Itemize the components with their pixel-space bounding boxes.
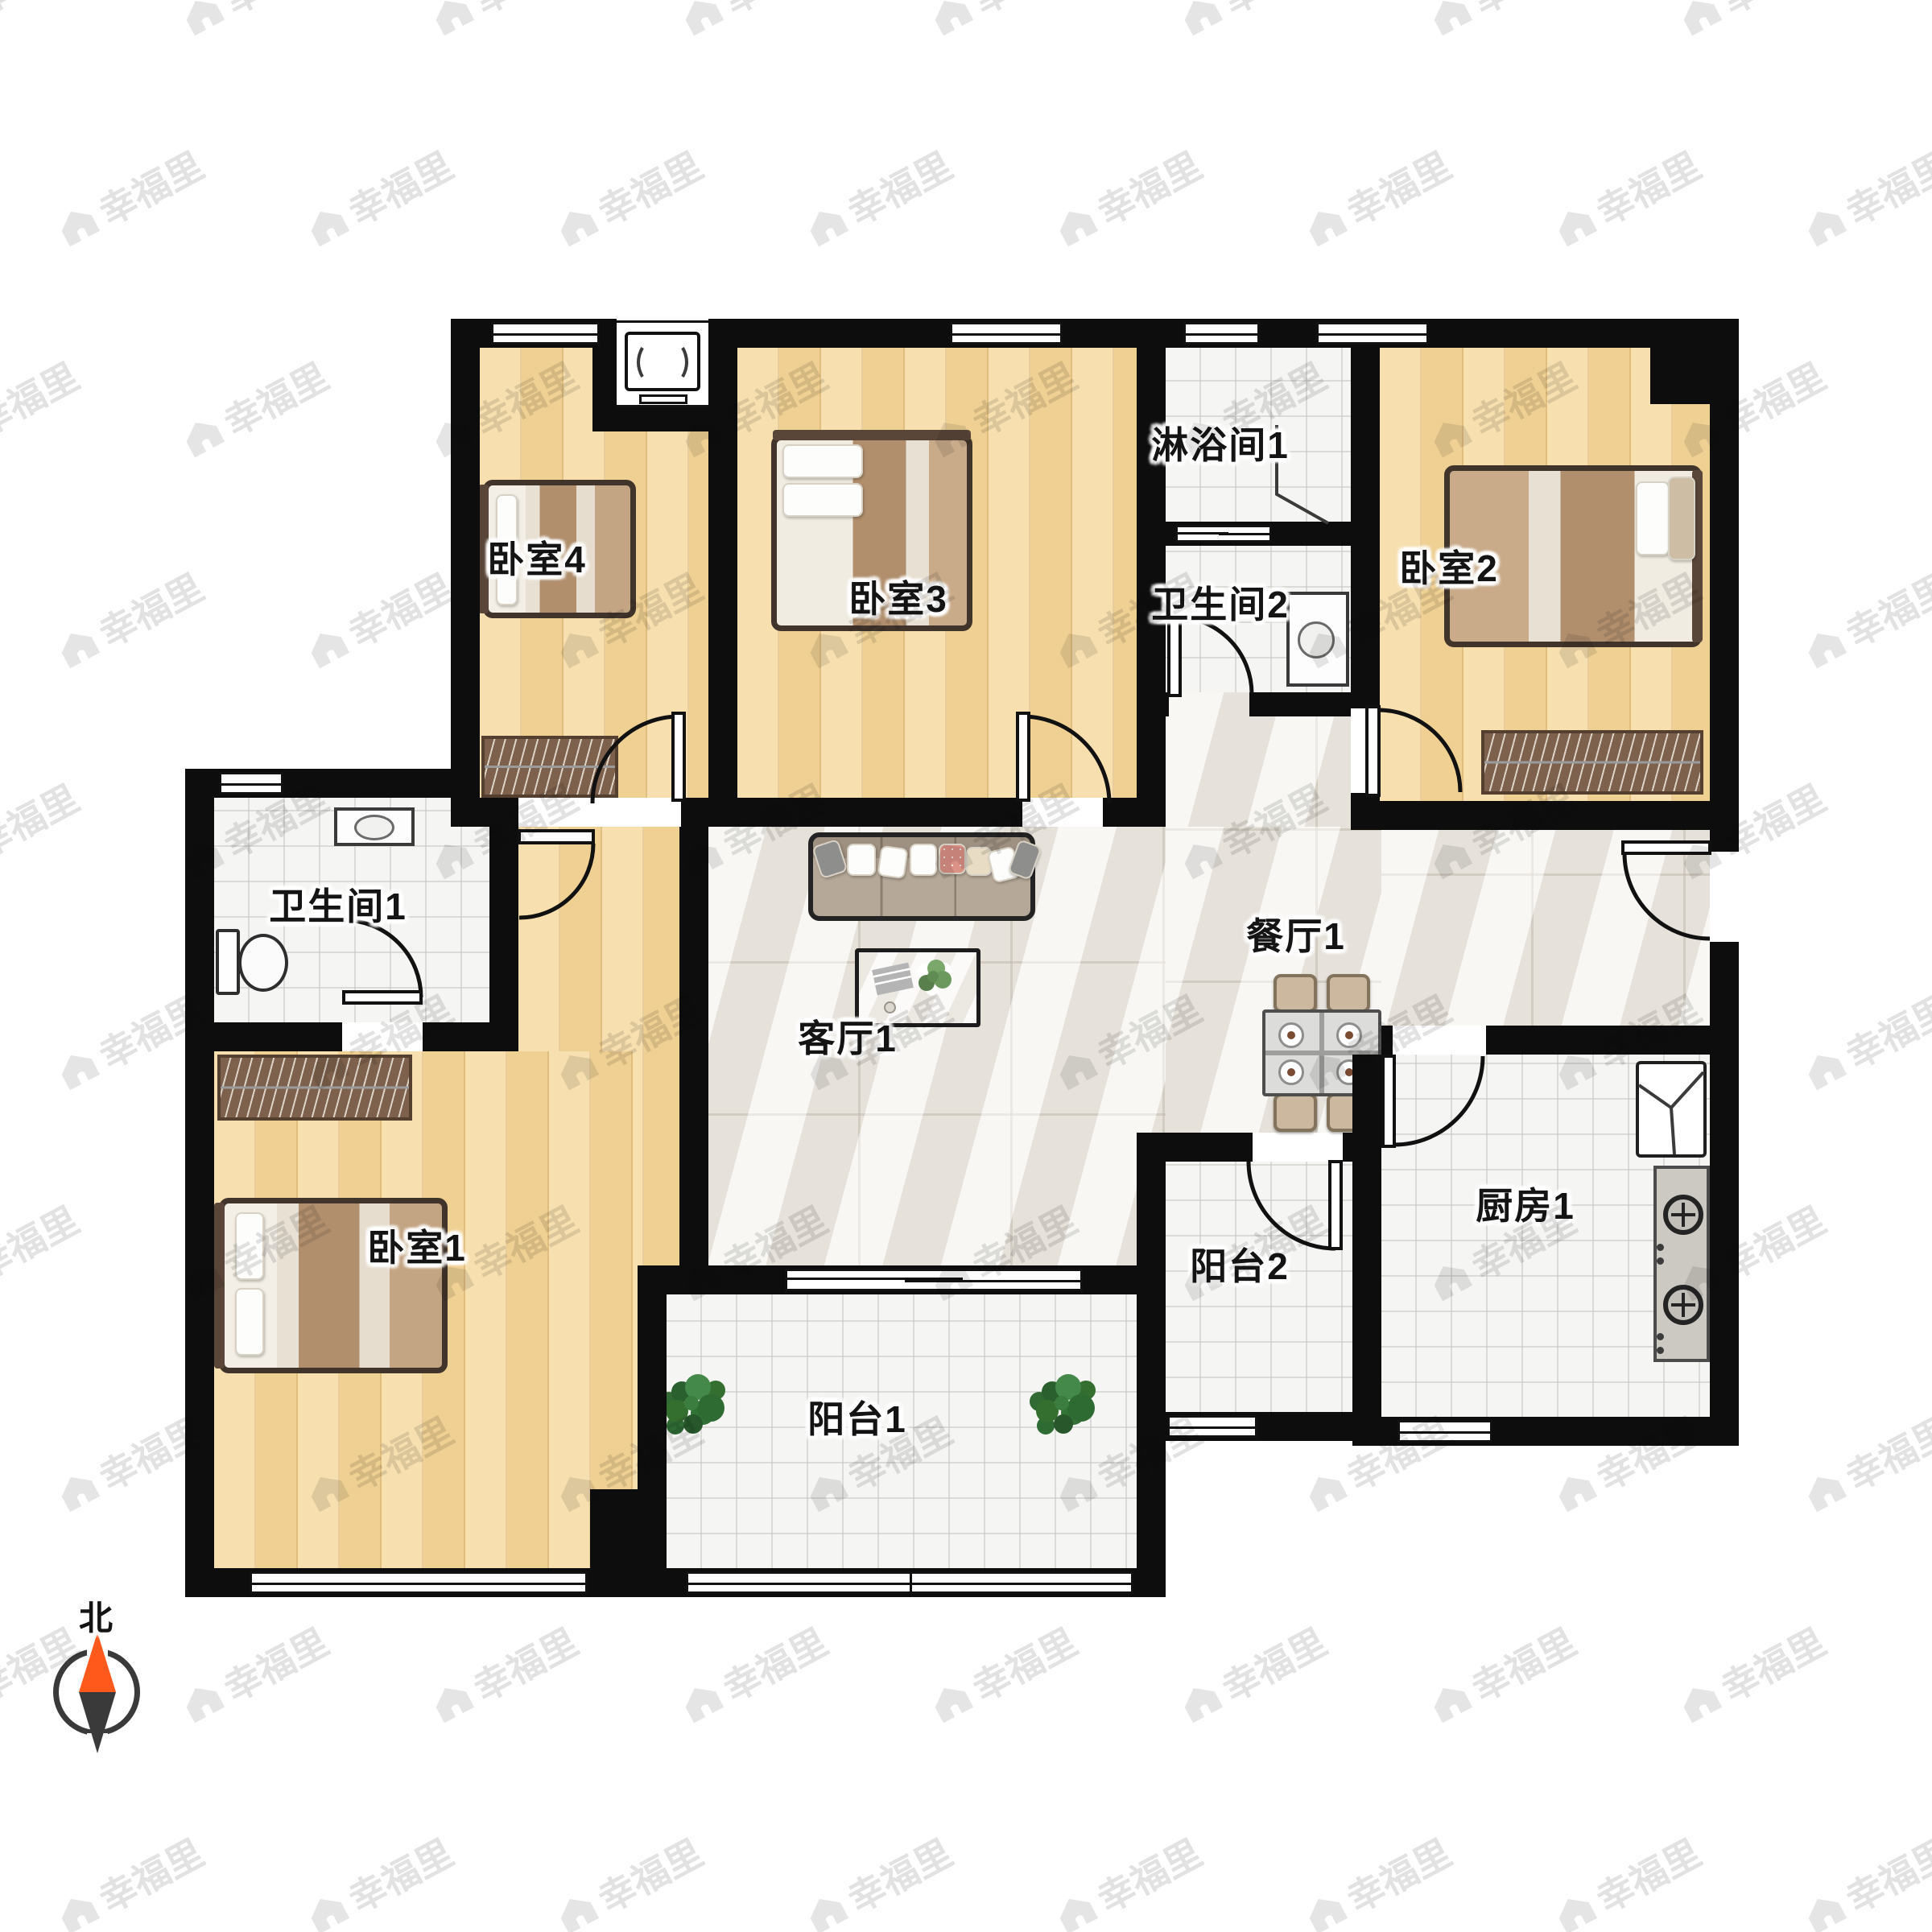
door-leaf xyxy=(1018,713,1029,800)
door-bedroom-4 xyxy=(592,716,679,803)
door-entry xyxy=(1624,853,1710,939)
fridge-door-lines xyxy=(1639,1072,1703,1154)
door-balcony-2 xyxy=(1249,1162,1335,1249)
door-leaf xyxy=(1367,707,1379,795)
room-label-bathroom-2: 卫生间2 xyxy=(1151,576,1290,629)
room-label-dining-1: 餐厅1 xyxy=(1246,907,1346,960)
door-bathroom-1 xyxy=(344,920,421,997)
door-leaf xyxy=(1330,1162,1341,1249)
room-label-bedroom-4: 卧室4 xyxy=(487,530,587,584)
room-label-shower-1: 淋浴间1 xyxy=(1151,416,1290,469)
room-label-kitchen-1: 厨房1 xyxy=(1476,1177,1575,1230)
room-label-bedroom-2: 卧室2 xyxy=(1399,539,1499,592)
room-label-bathroom-1: 卫生间1 xyxy=(269,877,407,931)
south-arrow-icon xyxy=(79,1692,116,1753)
room-label-bedroom-3: 卧室3 xyxy=(848,570,948,623)
north-arrow-icon xyxy=(79,1633,116,1692)
room-label-balcony-1: 阳台1 xyxy=(807,1390,907,1443)
door-bedroom-2 xyxy=(1378,710,1460,792)
doors-layer xyxy=(0,0,1932,1932)
room-label-balcony-2: 阳台2 xyxy=(1190,1237,1290,1290)
door-leaf xyxy=(1383,1056,1394,1146)
door-leaf xyxy=(1623,842,1710,853)
door-bedroom-3 xyxy=(1022,716,1109,803)
door-kitchen xyxy=(1394,1056,1483,1145)
door-leaf xyxy=(519,831,593,843)
door-hallway xyxy=(519,844,593,918)
floor-plan: 卧室4 卧室3 淋浴间1 卫生间2 卧室2 卫生间1 卧室1 客厅1 餐厅1 厨… xyxy=(0,0,1932,1932)
door-leaf xyxy=(673,713,684,800)
room-label-bedroom-1: 卧室1 xyxy=(367,1219,467,1272)
door-leaf xyxy=(344,992,421,1003)
compass-icon: 北 xyxy=(32,1590,193,1775)
air-conditioner-detail xyxy=(638,348,687,377)
compass-north-label: 北 xyxy=(79,1591,114,1641)
room-label-living-1: 客厅1 xyxy=(798,1009,898,1063)
